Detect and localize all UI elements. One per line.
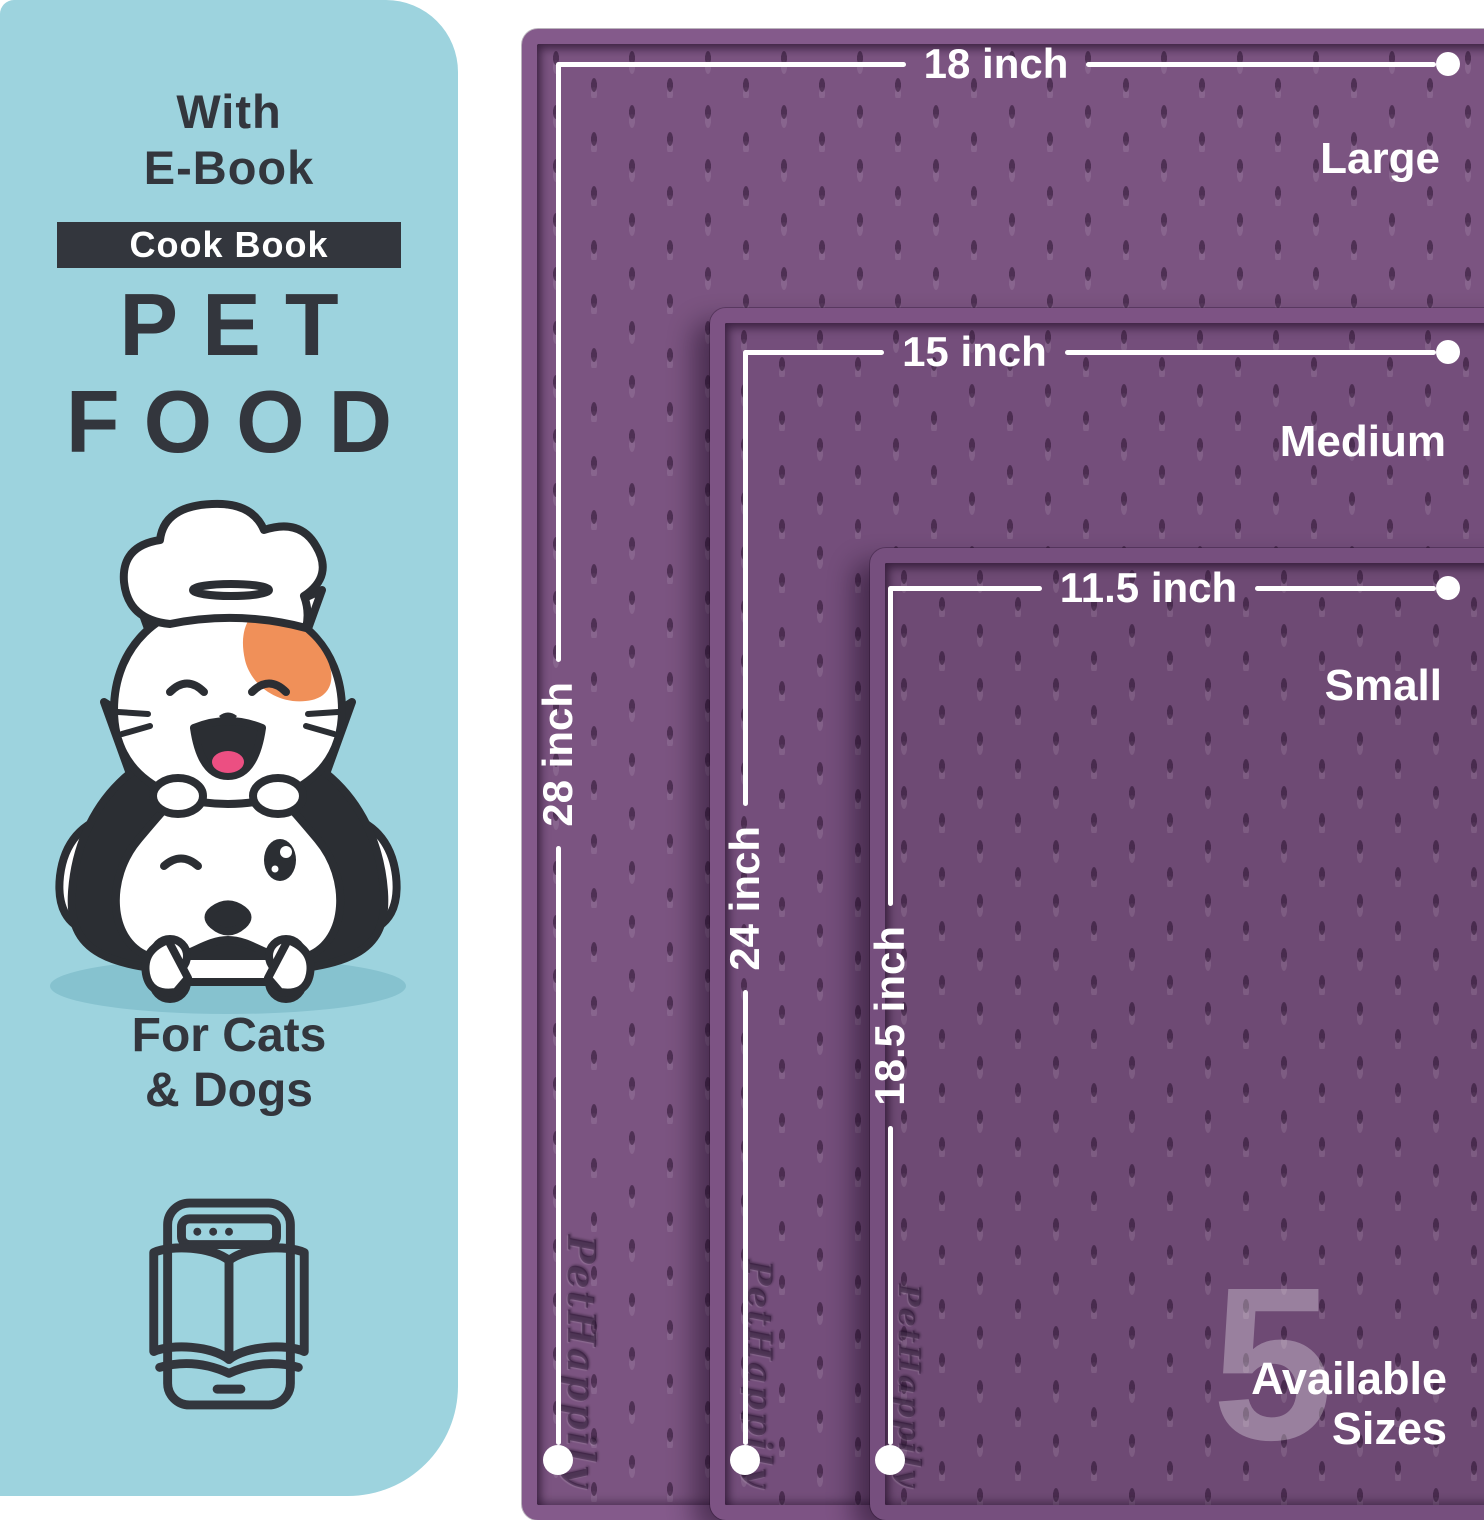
cookbook-badge-label: Cook Book (129, 224, 328, 266)
line-segment (888, 1126, 893, 1445)
tablet-dots (193, 1228, 233, 1236)
panel-subtitle: For Cats & Dogs (0, 1008, 458, 1118)
line-segment (556, 846, 561, 1445)
dimension-line-large-width: 18 inch (556, 40, 1460, 88)
panel-title-line1: With (0, 84, 458, 140)
dimension-line-small-width: 11.5 inch (888, 564, 1460, 612)
line-endpoint-dot (730, 1445, 760, 1475)
sizes-caption-line2: Sizes (1251, 1404, 1447, 1454)
chef-hat-icon (124, 504, 323, 628)
dimension-line-medium-height: 24 inch (721, 351, 769, 1475)
size-label-small: Small (1325, 661, 1442, 711)
line-endpoint-dot (1436, 340, 1460, 364)
chef-cat-and-dog-illustration (16, 472, 440, 1032)
cookbook-badge: Cook Book (57, 222, 401, 268)
dog-nose (209, 905, 248, 932)
product-name: PET FOOD (0, 276, 458, 470)
line-segment (556, 63, 561, 662)
dog-open-eye (264, 839, 296, 881)
dimension-label-small-height: 18.5 inch (866, 906, 914, 1126)
chef-hat-slit (193, 584, 269, 596)
panel-subtitle-line1: For Cats (0, 1008, 458, 1063)
dimension-label-medium-width: 15 inch (884, 328, 1065, 376)
product-infographic: { "panel": { "with": "With", "ebook": "E… (0, 0, 1484, 1500)
dimension-line-small-height: 18.5 inch (866, 587, 914, 1475)
line-segment (743, 990, 748, 1445)
sizes-caption: Available Sizes (1251, 1354, 1447, 1454)
line-endpoint-dot (1436, 52, 1460, 76)
sizes-caption-line1: Available (1251, 1354, 1447, 1404)
dimension-label-large-height: 28 inch (534, 662, 582, 847)
dimension-label-small-width: 11.5 inch (1042, 564, 1255, 612)
ebook-tablet-icon (130, 1194, 328, 1414)
line-endpoint-dot (1436, 576, 1460, 600)
dimension-label-medium-height: 24 inch (721, 806, 769, 991)
line-segment (1255, 586, 1436, 591)
line-segment (1065, 350, 1436, 355)
line-segment (743, 351, 748, 806)
panel-title-line2: E-Book (0, 140, 458, 196)
line-segment (556, 62, 906, 67)
dimension-line-large-height: 28 inch (534, 63, 582, 1475)
dimension-label-large-width: 18 inch (906, 40, 1087, 88)
panel-title: With E-Book (0, 84, 458, 196)
line-segment (888, 587, 893, 906)
panel-subtitle-line2: & Dogs (0, 1063, 458, 1118)
size-label-medium: Medium (1280, 417, 1446, 467)
left-info-panel: With E-Book Cook Book PET FOOD (0, 0, 458, 1496)
cat-figure (114, 504, 342, 814)
product-name-line1: PET (0, 276, 458, 373)
line-endpoint-dot (875, 1445, 905, 1475)
dimension-line-medium-width: 15 inch (743, 328, 1460, 376)
line-segment (1086, 62, 1436, 67)
cat-tongue (212, 751, 244, 773)
line-endpoint-dot (543, 1445, 573, 1475)
product-name-line2: FOOD (0, 373, 458, 470)
scene: With E-Book Cook Book PET FOOD (0, 0, 1484, 1500)
size-label-large: Large (1320, 134, 1440, 184)
